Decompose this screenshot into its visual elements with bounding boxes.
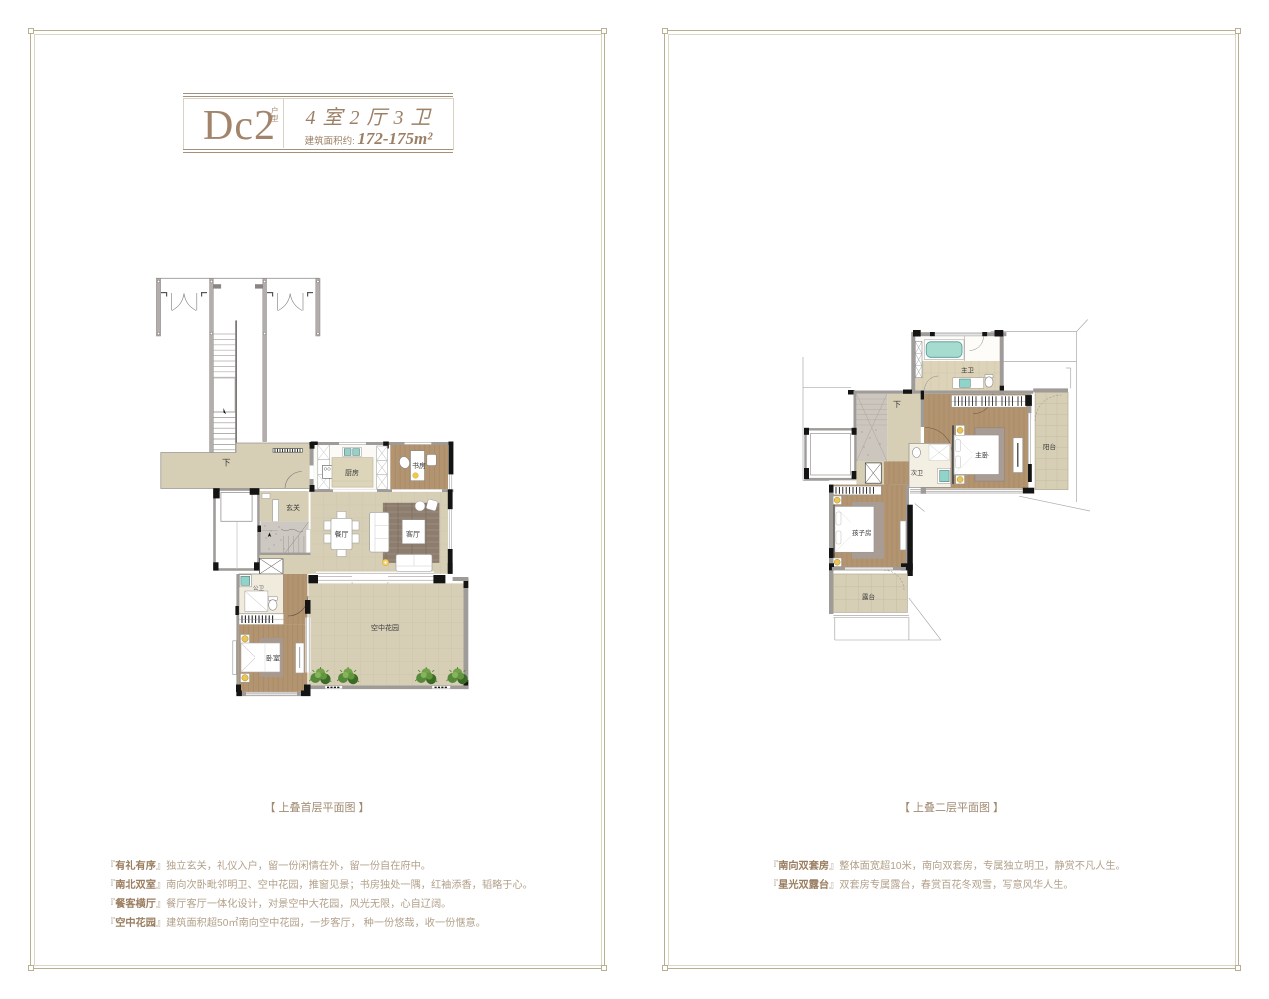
svg-text:公卫: 公卫 (253, 585, 265, 592)
svg-text:孩子房: 孩子房 (852, 528, 872, 537)
svg-text:空中花园: 空中花园 (371, 623, 399, 632)
svg-text:卧室: 卧室 (266, 654, 280, 663)
svg-text:下: 下 (893, 400, 901, 409)
svg-text:厨房: 厨房 (345, 468, 359, 477)
svg-text:露台: 露台 (862, 592, 875, 601)
svg-text:餐厅: 餐厅 (335, 530, 349, 539)
svg-text:下: 下 (222, 458, 231, 468)
svg-text:客厅: 客厅 (406, 530, 420, 539)
svg-text:主卧: 主卧 (975, 451, 989, 460)
svg-text:书房: 书房 (412, 461, 426, 470)
svg-text:主卫: 主卫 (961, 366, 975, 375)
svg-text:阳台: 阳台 (1043, 442, 1056, 451)
svg-text:次卫: 次卫 (911, 469, 923, 477)
svg-text:玄关: 玄关 (286, 503, 300, 512)
